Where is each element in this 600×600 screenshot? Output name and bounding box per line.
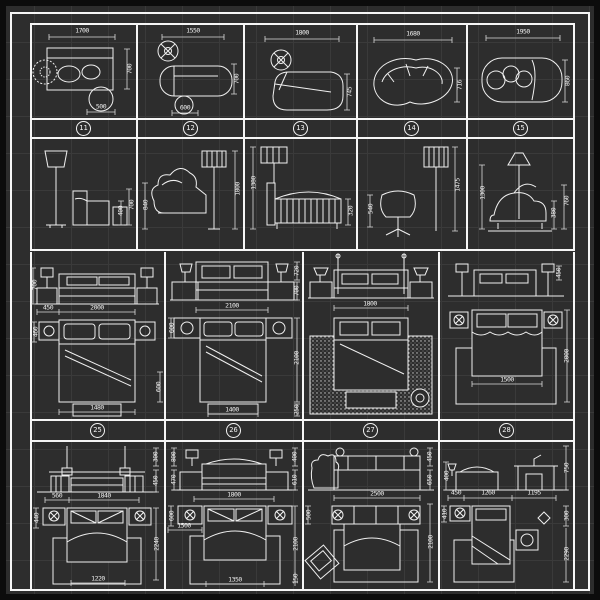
block-sofa-plan-12[interactable]: 1550 700 600 [138, 24, 242, 117]
dim-label: 600 [180, 105, 190, 112]
block-number-badge: 12 [183, 121, 198, 136]
dim-label: 540 [368, 204, 375, 214]
dim-label: 1950 [516, 29, 530, 36]
dim-label: 1475 [455, 178, 462, 192]
block-elevation-12[interactable]: 840 1800 [138, 139, 242, 248]
dim-label: 2240 [154, 537, 161, 551]
dim-label: 1680 [406, 31, 420, 38]
dim-label: 2100 [293, 537, 300, 551]
dim-label: 1400 [225, 407, 239, 414]
dim-label: 1840 [97, 493, 111, 500]
wide-bed-armchair-drawing [304, 442, 437, 589]
bed-elevation-plan-drawing [166, 252, 301, 418]
dim-label: 1350 [228, 577, 242, 584]
dim-label: 720 [294, 266, 301, 276]
dim-label: 500 [96, 104, 106, 111]
dim-label: 700 [294, 286, 301, 296]
block-single-bed-desk-34[interactable]: 400 450 1260 1195 750 410 300 2290 [440, 442, 572, 589]
block-sofa-plan-13[interactable]: 1800 745 [245, 24, 355, 117]
block-number-badge: 15 [513, 121, 528, 136]
dim-label: 450 [43, 305, 53, 312]
dim-label: 2000 [564, 349, 571, 363]
dim-label: 840 [143, 200, 150, 210]
block-bed-25[interactable]: 700 450 2000 460 1480 600 [31, 252, 163, 418]
dim-label: 300 [564, 511, 571, 521]
dim-label: 1800 [363, 301, 377, 308]
block-number-badge: 11 [76, 121, 91, 136]
block-number-badge: 13 [293, 121, 308, 136]
bed-pendant-lamps-drawing [31, 442, 163, 589]
dim-label: 460 [33, 327, 40, 337]
dim-label: 320 [348, 206, 355, 216]
chaise-sofa-plan-drawing [138, 24, 242, 117]
block-elevation-13[interactable]: 1380 320 [245, 139, 355, 248]
dim-label: 1800 [295, 30, 309, 37]
dim-label: 400 [444, 471, 451, 481]
dim-label: 1300 [480, 186, 487, 200]
block-number-badge: 28 [499, 423, 514, 438]
cad-sheet: 1700 700 500 1550 700 600 1800 745 [0, 0, 600, 600]
single-bed-desk-drawing [440, 442, 572, 589]
dim-label: 400 [292, 452, 299, 462]
dim-label: 450 [451, 490, 461, 497]
dim-label: 300 [153, 452, 160, 462]
curved-sofa-plan-drawing [358, 24, 465, 117]
dim-label: 1195 [527, 490, 541, 497]
dim-label: 2000 [90, 305, 104, 312]
block-bed-plan-31[interactable]: 300 450 560 1840 440 2240 1220 [31, 442, 163, 589]
block-bed-28[interactable]: 450 2000 1500 [440, 252, 572, 418]
sectional-sofa-plan-drawing [31, 24, 135, 117]
block-sofa-plan-14[interactable]: 1680 716 [358, 24, 465, 117]
dim-label: 150 [293, 574, 300, 584]
dim-label: 500 [306, 510, 313, 520]
table-line [30, 419, 575, 421]
block-elevation-11[interactable]: 700 400 [31, 139, 135, 248]
dim-label: 1550 [186, 28, 200, 35]
dim-label: 560 [52, 493, 62, 500]
dim-label: 400 [118, 206, 125, 216]
block-bed-plan-33[interactable]: 2500 450 650 500 2100 [304, 442, 437, 589]
block-elevation-14[interactable]: 540 1475 [358, 139, 465, 248]
block-sofa-plan-15[interactable]: 1950 860 [468, 24, 572, 117]
lounge-sofa-plan-drawing [245, 24, 355, 117]
dim-label: 750 [564, 463, 571, 473]
dim-label: 450 [556, 268, 563, 278]
block-number-badge: 25 [90, 423, 105, 438]
block-bed-plan-32[interactable]: 800 470 400 610 1800 600 1500 2100 150 1… [166, 442, 301, 589]
dim-label: 450 [427, 452, 434, 462]
block-bed-26[interactable]: 720 700 2100 600 2100 250 1400 [166, 252, 301, 418]
dim-label: 760 [564, 196, 571, 206]
bed-wall-lamps-drawing [166, 442, 301, 589]
dim-label: 700 [32, 280, 39, 290]
block-sofa-plan-11[interactable]: 1700 700 500 [31, 24, 135, 117]
dim-label: 470 [171, 475, 178, 485]
dim-label: 250 [294, 405, 301, 415]
dim-label: 700 [127, 64, 134, 74]
block-number-badge: 14 [404, 121, 419, 136]
dim-label: 600 [156, 382, 163, 392]
dim-label: 1260 [481, 490, 495, 497]
dim-label: 1500 [177, 523, 191, 530]
dim-label: 1220 [91, 576, 105, 583]
recliner-lamp-elevation-drawing [138, 139, 242, 248]
swivel-chair-lamp-elevation-drawing [358, 139, 465, 248]
dim-label: 2500 [370, 491, 384, 498]
dim-label: 1800 [235, 182, 242, 196]
block-elevation-15[interactable]: 1300 380 760 [468, 139, 572, 248]
capsule-sofa-plan-drawing [468, 24, 572, 117]
dim-label: 1380 [251, 176, 258, 190]
dim-label: 800 [171, 452, 178, 462]
dim-label: 410 [442, 509, 449, 519]
armchair-lamp-elevation-drawing [31, 139, 135, 248]
table-line [30, 249, 575, 251]
dim-label: 1480 [90, 405, 104, 412]
block-number-badge: 26 [226, 423, 241, 438]
dim-label: 1800 [227, 492, 241, 499]
dim-label: 380 [551, 208, 558, 218]
dim-label: 2100 [428, 535, 435, 549]
dim-label: 450 [153, 476, 160, 486]
table-line [30, 118, 575, 120]
dim-label: 600 [169, 323, 176, 333]
table-line [573, 23, 575, 251]
dim-label: 600 [169, 511, 176, 521]
dim-label: 860 [565, 76, 572, 86]
dim-label: 2100 [294, 351, 301, 365]
dim-label: 440 [34, 513, 41, 523]
poster-bed-elevation-plan-drawing [304, 252, 437, 418]
dim-label: 2290 [564, 547, 571, 561]
block-number-badge: 27 [363, 423, 378, 438]
bed-elevation-plan-drawing [31, 252, 163, 418]
dim-label: 2100 [225, 303, 239, 310]
bed-elevation-plan-drawing [440, 252, 572, 418]
dim-label: 700 [129, 200, 136, 210]
dim-label: 610 [292, 475, 299, 485]
daybed-lamp-elevation-drawing [245, 139, 355, 248]
block-bed-27[interactable]: 1800 [304, 252, 437, 418]
dim-label: 700 [234, 74, 241, 84]
dim-label: 1500 [500, 377, 514, 384]
dim-label: 1700 [75, 28, 89, 35]
dim-label: 650 [427, 475, 434, 485]
dim-label: 745 [347, 87, 354, 97]
dim-label: 716 [457, 80, 464, 90]
